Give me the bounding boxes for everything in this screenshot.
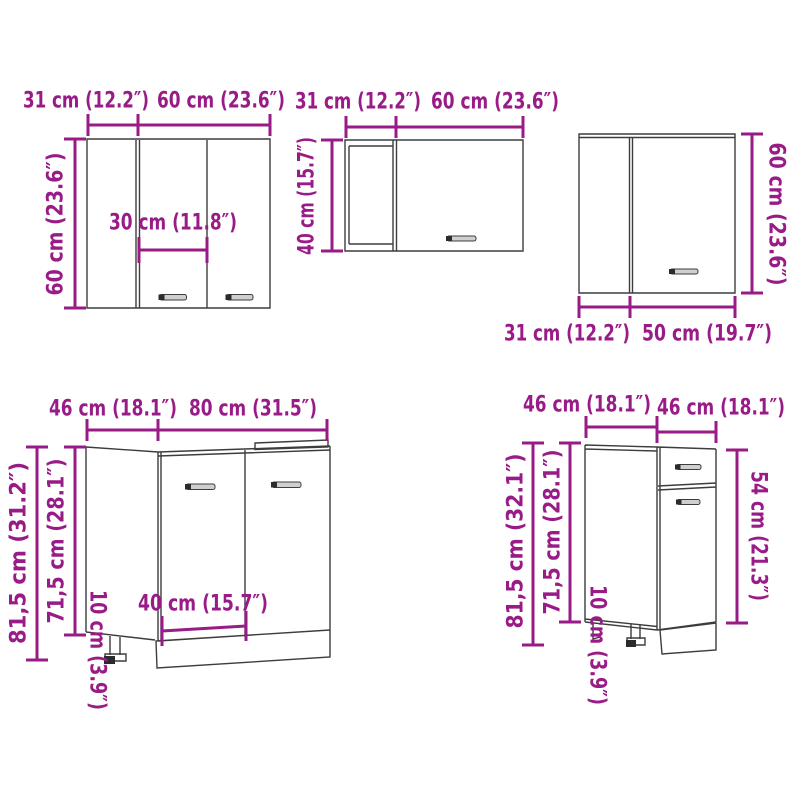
wall-cabinet-left-inner-width-label: 30 cm (11.8″) [109, 211, 237, 236]
base-cabinet-drawer-depth-dimension-line [586, 416, 657, 438]
base-cabinet-sink-handle-cap-right [271, 482, 277, 488]
wall-cabinet-middle-outline [345, 140, 523, 251]
wall-cabinet-left-inner-dimension-line [139, 237, 207, 263]
base-cabinet-sink-handle-cap-left [185, 484, 191, 490]
base-cabinet-drawer-width-dimension-line [657, 421, 716, 443]
base-cabinet-drawer-body-height-label: 71,5 cm (28.1″) [541, 450, 566, 615]
base-cabinet-sink: 46 cm (18.1″) 80 cm (31.5″) 81,5 cm (31.… [7, 397, 331, 711]
wall-cabinet-corner-height-label: 60 cm (23.6″) [764, 143, 789, 286]
wall-cabinet-left-width-label: 60 cm (23.6″) [157, 89, 285, 114]
base-cabinet-drawer-depth-label: 46 cm (18.1″) [523, 393, 651, 418]
wall-cabinet-middle-height-label: 40 cm (15.7″) [295, 137, 320, 255]
wall-cabinet-left-top-dimension-line [88, 114, 270, 136]
wall-cabinet-left-handle-cap-left [159, 295, 165, 301]
wall-cabinet-middle-width-label: 60 cm (23.6″) [431, 90, 559, 115]
wall-cabinet-left: 31 cm (12.2″) 60 cm (23.6″) 60 cm (23.6″… [23, 89, 285, 309]
wall-cabinet-corner: 60 cm (23.6″) 31 cm (12.2″) 50 cm (19.7″… [504, 134, 789, 347]
base-cabinet-drawer-width-label: 46 cm (18.1″) [657, 396, 785, 421]
base-cabinet-sink-plinth-height-label: 10 cm (3.9″) [85, 590, 110, 710]
cabinet-dimension-diagram: 31 cm (12.2″) 60 cm (23.6″) 60 cm (23.6″… [0, 0, 800, 800]
base-cabinet-drawer-foot-nut [626, 640, 636, 647]
wall-cabinet-middle-height-dimension-line [321, 140, 343, 251]
wall-cabinet-middle-top-dimension-line [346, 116, 523, 138]
dimension-diagram-canvas: 31 cm (12.2″) 60 cm (23.6″) 60 cm (23.6″… [0, 0, 800, 800]
base-cabinet-sink-outline [86, 440, 330, 668]
base-cabinet-drawer-plinth-height-label: 10 cm (3.9″) [585, 585, 610, 705]
base-cabinet-sink-depth-label: 46 cm (18.1″) [49, 397, 177, 422]
wall-cabinet-left-handle-cap-right [226, 295, 232, 301]
wall-cabinet-corner-outline [579, 134, 735, 293]
base-cabinet-sink-width-label: 80 cm (31.5″) [189, 397, 317, 422]
wall-cabinet-middle: 31 cm (12.2″) 60 cm (23.6″) 40 cm (15.7″… [295, 90, 560, 256]
wall-cabinet-corner-height-dimension-line [741, 134, 763, 293]
base-cabinet-drawer: 46 cm (18.1″) 46 cm (18.1″) 81,5 cm (32.… [504, 393, 786, 706]
wall-cabinet-left-depth-label: 31 cm (12.2″) [23, 89, 149, 114]
wall-cabinet-corner-width-label: 50 cm (19.7″) [642, 322, 772, 347]
base-cabinet-drawer-drawer-handle-cap [675, 465, 681, 470]
base-cabinet-sink-total-height-label: 81,5 cm (31.2″) [7, 462, 32, 644]
base-cabinet-sink-top-dimension-line [87, 419, 327, 441]
wall-cabinet-left-height-label: 60 cm (23.6″) [44, 153, 69, 296]
wall-cabinet-middle-handle-cap [446, 236, 452, 241]
wall-cabinet-corner-depth-label: 31 cm (12.2″) [504, 322, 630, 347]
wall-cabinet-corner-handle-cap [669, 269, 675, 274]
base-cabinet-drawer-front-height-dimension-line [726, 450, 748, 623]
base-cabinet-sink-body-height-label: 71,5 cm (28.1″) [45, 459, 70, 624]
base-cabinet-sink-inner-width-label: 40 cm (15.7″) [138, 592, 268, 617]
wall-cabinet-middle-depth-label: 31 cm (12.2″) [295, 90, 421, 115]
wall-cabinet-corner-bottom-dimension-line [579, 296, 735, 318]
base-cabinet-drawer-door-handle-cap [676, 500, 682, 505]
base-cabinet-drawer-total-height-label: 81,5 cm (32.1″) [504, 454, 529, 629]
base-cabinet-drawer-front-height-label: 54 cm (21.3″) [746, 471, 771, 601]
